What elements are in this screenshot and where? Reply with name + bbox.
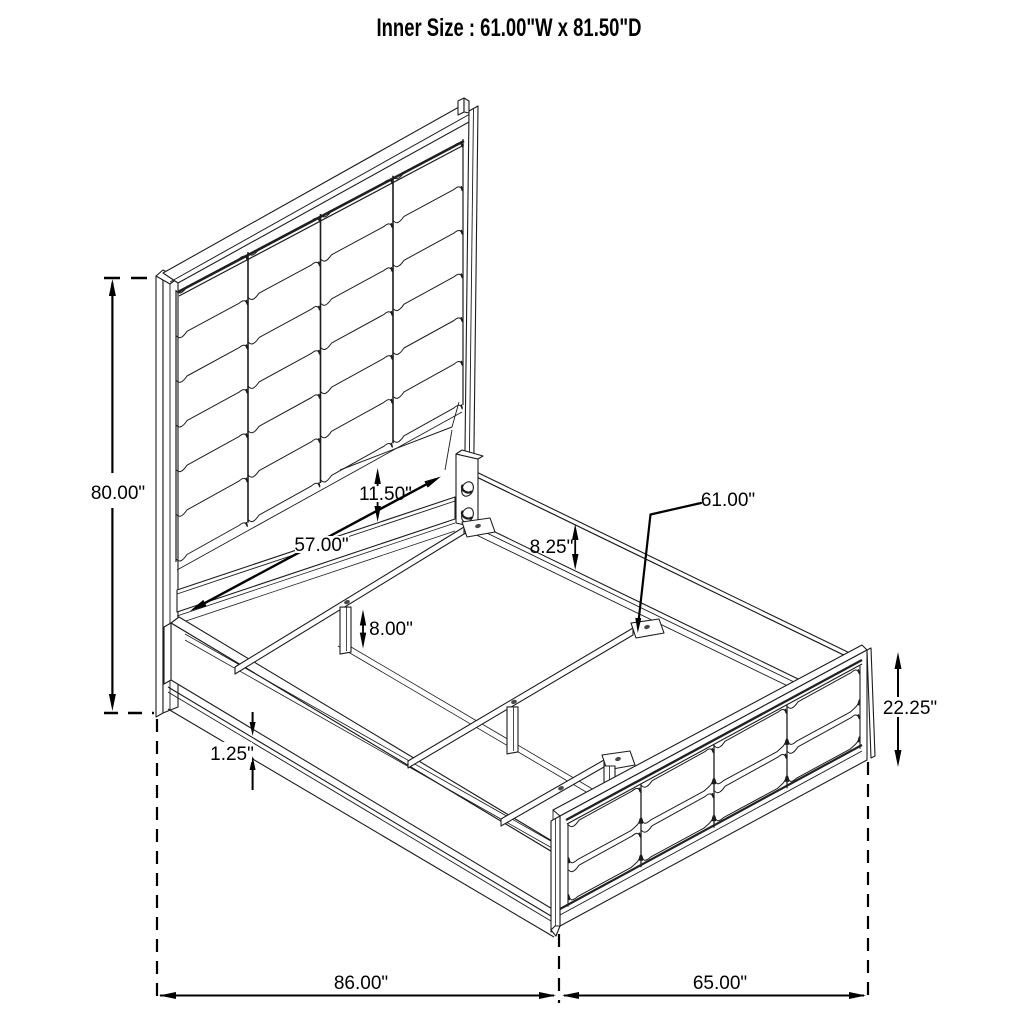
svg-text:1.25": 1.25" [210,744,254,765]
svg-text:65.00": 65.00" [693,973,747,994]
svg-text:61.00": 61.00" [701,490,755,511]
svg-text:Inner Size : 61.00"W x 81.50"D: Inner Size : 61.00"W x 81.50"D [377,14,642,42]
svg-text:8.00": 8.00" [369,619,413,640]
svg-text:86.00": 86.00" [334,973,388,994]
svg-text:22.25": 22.25" [883,698,937,719]
svg-text:11.50": 11.50" [359,484,412,505]
svg-text:8.25": 8.25" [530,537,574,558]
svg-text:57.00": 57.00" [294,535,348,556]
svg-text:80.00": 80.00" [91,483,145,504]
